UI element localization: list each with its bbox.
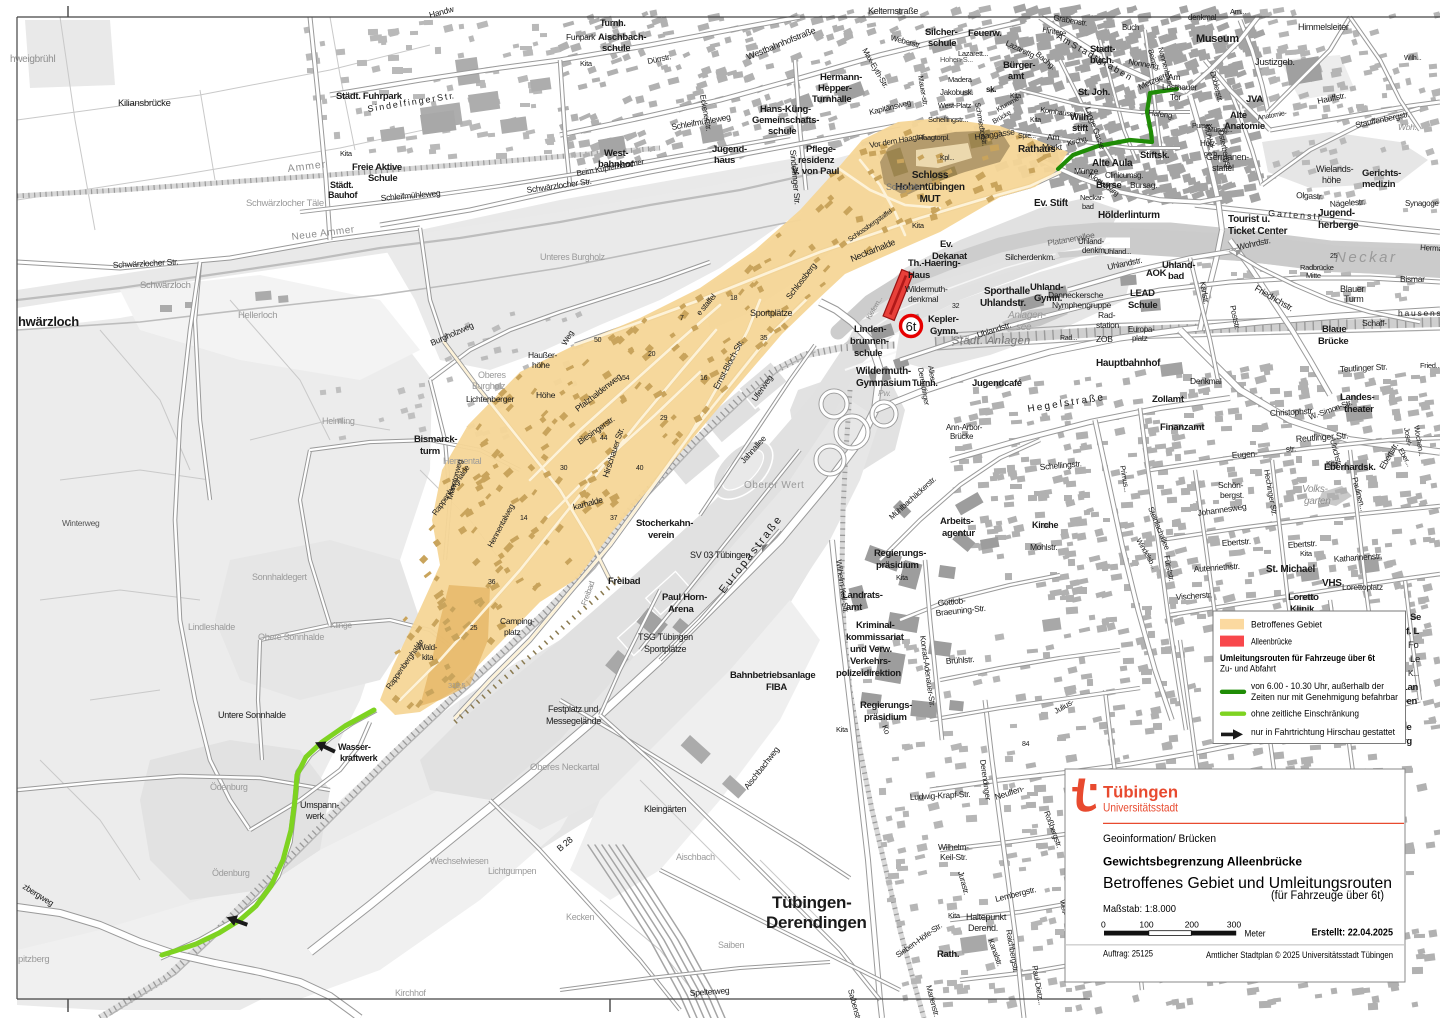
- svg-text:turm: turm: [420, 446, 440, 457]
- svg-text:Spie...: Spie...: [1018, 133, 1036, 140]
- svg-text:denkmal: denkmal: [1188, 13, 1217, 22]
- svg-text:Ticket Center: Ticket Center: [1228, 226, 1288, 237]
- svg-text:Rad...: Rad...: [1060, 335, 1077, 342]
- svg-text:Keil-Str.: Keil-Str.: [940, 852, 967, 862]
- svg-text:Messegelände: Messegelände: [546, 716, 601, 726]
- svg-text:Kita: Kita: [1030, 117, 1041, 124]
- svg-text:amt: amt: [1008, 71, 1025, 82]
- svg-text:brunnen-: brunnen-: [850, 336, 889, 347]
- svg-text:Helmling: Helmling: [322, 416, 355, 426]
- svg-text:ohne zeitliche Einschränkung: ohne zeitliche Einschränkung: [1251, 709, 1359, 720]
- svg-text:VHS: VHS: [1322, 578, 1342, 589]
- svg-text:höhe: höhe: [1322, 175, 1341, 185]
- svg-text:Freibad: Freibad: [608, 576, 641, 587]
- svg-text:Betroffenes Gebiet: Betroffenes Gebiet: [1251, 620, 1322, 631]
- svg-text:Clinicumsg.: Clinicumsg.: [1105, 171, 1143, 180]
- svg-text:Umspann-: Umspann-: [300, 800, 339, 810]
- svg-text:Uhland...: Uhland...: [1104, 247, 1132, 256]
- svg-text:Ödenburg: Ödenburg: [210, 782, 248, 792]
- svg-text:Loretto: Loretto: [1288, 592, 1319, 603]
- svg-text:40: 40: [636, 465, 644, 472]
- svg-text:Jakobusk.: Jakobusk.: [940, 88, 973, 97]
- svg-text:Stiftsk.: Stiftsk.: [1140, 150, 1169, 161]
- svg-text:Lustnauer: Lustnauer: [1162, 82, 1198, 92]
- svg-text:32: 32: [952, 303, 960, 310]
- svg-text:theater: theater: [1344, 404, 1374, 415]
- svg-text:Aischbach: Aischbach: [676, 852, 715, 862]
- svg-text:84: 84: [1022, 741, 1030, 748]
- svg-text:6t: 6t: [906, 319, 917, 334]
- svg-text:Nymphengruppe: Nymphengruppe: [1052, 300, 1112, 310]
- svg-text:sk.: sk.: [986, 85, 996, 94]
- svg-text:Schloss: Schloss: [912, 170, 949, 181]
- svg-text:Wilhelm-: Wilhelm-: [938, 842, 969, 852]
- svg-text:präsidium: präsidium: [876, 560, 919, 571]
- svg-text:denkmal: denkmal: [908, 294, 938, 304]
- svg-text:Olgastr.: Olgastr.: [1296, 190, 1323, 201]
- svg-text:37: 37: [610, 515, 618, 522]
- svg-text:Gewichtsbegrenzung Alleenbrück: Gewichtsbegrenzung Alleenbrücke: [1103, 854, 1302, 868]
- svg-text:Se: Se: [1410, 612, 1421, 623]
- svg-text:denkm.: denkm.: [1082, 246, 1107, 255]
- svg-text:Hellerloch: Hellerloch: [238, 310, 277, 321]
- svg-text:Zollamt: Zollamt: [1152, 394, 1185, 405]
- svg-text:Uhlandstr.: Uhlandstr.: [980, 298, 1026, 309]
- svg-text:Wasser-: Wasser-: [338, 742, 371, 752]
- svg-text:44: 44: [600, 435, 608, 442]
- svg-text:Sportplätze: Sportplätze: [644, 644, 687, 654]
- svg-text:Bismar: Bismar: [1400, 274, 1425, 284]
- svg-text:Mohlstr.: Mohlstr.: [1030, 542, 1057, 552]
- svg-text:Schänzle: Schänzle: [886, 182, 921, 192]
- svg-text:Neckar: Neckar: [1335, 249, 1398, 266]
- svg-text:Schule: Schule: [368, 173, 397, 184]
- svg-text:Sporthalle: Sporthalle: [984, 286, 1031, 297]
- svg-text:Burgholz: Burgholz: [472, 381, 506, 391]
- svg-text:Wald-: Wald-: [418, 643, 438, 652]
- svg-text:Th.-Haering-: Th.-Haering-: [908, 258, 960, 269]
- svg-text:pitzberg: pitzberg: [18, 954, 49, 965]
- svg-text:Bursag.: Bursag.: [1130, 180, 1157, 190]
- svg-text:schule: schule: [928, 38, 956, 49]
- svg-text:Oberes Neckartal: Oberes Neckartal: [530, 762, 599, 773]
- svg-text:Regierungs-: Regierungs-: [860, 700, 912, 711]
- svg-text:Haltepunkt: Haltepunkt: [966, 912, 1007, 922]
- svg-text:kommissariat: kommissariat: [846, 632, 905, 643]
- svg-text:Kelternstraße: Kelternstraße: [868, 6, 918, 16]
- svg-text:7: 7: [680, 315, 684, 322]
- svg-text:Kiliansbrücke: Kiliansbrücke: [118, 98, 171, 109]
- svg-text:29: 29: [660, 415, 668, 422]
- svg-text:Neckar-: Neckar-: [1080, 193, 1105, 202]
- svg-text:hweigbrühl: hweigbrühl: [10, 54, 55, 65]
- svg-text:Hölderlinturm: Hölderlinturm: [1098, 210, 1160, 221]
- svg-text:Alte Aula: Alte Aula: [1092, 158, 1133, 169]
- svg-text:garten: garten: [1304, 496, 1331, 507]
- svg-text:Justizgeb.: Justizgeb.: [1255, 57, 1295, 68]
- svg-text:Kirche: Kirche: [1032, 520, 1059, 530]
- svg-text:Brücke: Brücke: [1318, 336, 1348, 347]
- svg-text:20: 20: [648, 351, 656, 358]
- svg-text:Kita: Kita: [948, 911, 961, 920]
- svg-text:Kleingärten: Kleingärten: [644, 804, 687, 814]
- svg-text:Linden-: Linden-: [854, 324, 886, 335]
- svg-text:Hermann: Hermann: [1420, 243, 1440, 254]
- svg-text:stift: stift: [1072, 123, 1089, 134]
- svg-text:see: see: [1016, 322, 1032, 333]
- svg-text:Anlagen-: Anlagen-: [1007, 310, 1047, 321]
- svg-text:Germanen-: Germanen-: [1206, 152, 1249, 162]
- svg-text:Ödenburg: Ödenburg: [212, 868, 250, 878]
- svg-text:polizeidirektion: polizeidirektion: [836, 668, 901, 679]
- svg-text:kita: kita: [422, 653, 434, 662]
- svg-text:bahnhof: bahnhof: [598, 159, 634, 170]
- svg-text:West-Platz: West-Platz: [938, 101, 972, 110]
- svg-text:Schaff-: Schaff-: [1362, 318, 1387, 328]
- svg-text:LEAD: LEAD: [1130, 288, 1155, 299]
- svg-text:herberge: herberge: [1318, 220, 1359, 231]
- svg-text:JVA: JVA: [1246, 94, 1263, 105]
- svg-text:Universitätsstadt: Universitätsstadt: [1103, 801, 1179, 815]
- svg-text:16: 16: [700, 375, 708, 382]
- svg-text:300: 300: [1227, 920, 1241, 930]
- svg-text:büch.: büch.: [1090, 55, 1114, 66]
- svg-text:Rath.: Rath.: [937, 949, 959, 960]
- svg-text:Uhland-: Uhland-: [1162, 260, 1195, 271]
- svg-text:präsidium: präsidium: [864, 712, 907, 723]
- svg-text:residenz: residenz: [798, 155, 835, 166]
- svg-text:Umleitungsrouten für Fahrzeuge: Umleitungsrouten für Fahrzeuge über 6t: [1220, 653, 1376, 664]
- svg-text:Maßstab: 1:8.000: Maßstab: 1:8.000: [1103, 903, 1176, 915]
- svg-text:Denkmal: Denkmal: [1190, 376, 1222, 386]
- svg-text:Kita: Kita: [1300, 549, 1313, 558]
- svg-text:Obere Sonnhalde: Obere Sonnhalde: [258, 632, 324, 642]
- svg-text:nur in Fahrtrichtung Hirschau: nur in Fahrtrichtung Hirschau gestattet: [1251, 727, 1395, 738]
- svg-text:Erstellt: 22.04.2025: Erstellt: 22.04.2025: [1312, 926, 1394, 938]
- svg-text:und Verw.: und Verw.: [850, 644, 892, 655]
- svg-text:von 6.00 - 10.30 Uhr, außerhal: von 6.00 - 10.30 Uhr, außerhalb der: [1251, 681, 1384, 692]
- svg-text:str.: str.: [1285, 443, 1296, 454]
- svg-text:Fo: Fo: [1408, 640, 1419, 651]
- svg-text:Regierungs-: Regierungs-: [874, 548, 926, 559]
- svg-text:Münzg...: Münzg...: [1208, 127, 1233, 134]
- svg-text:Gerichts-: Gerichts-: [1362, 168, 1401, 179]
- svg-text:0: 0: [1101, 920, 1106, 930]
- svg-text:Wildermuth-: Wildermuth-: [856, 366, 911, 377]
- svg-text:Oberer Wert: Oberer Wert: [744, 480, 804, 491]
- svg-text:bergst.: bergst.: [1220, 490, 1244, 500]
- svg-text:Kriminal-: Kriminal-: [856, 620, 895, 631]
- svg-text:Unteres Burgholz: Unteres Burgholz: [540, 252, 606, 262]
- svg-text:Pflege-: Pflege-: [806, 144, 836, 155]
- svg-text:Jugend-: Jugend-: [1318, 208, 1355, 219]
- svg-text:Landes-: Landes-: [1340, 392, 1374, 403]
- svg-text:Amtlicher Stadtplan © 2025 Uni: Amtlicher Stadtplan © 2025 Universitätss…: [1206, 950, 1393, 960]
- svg-text:Wechselwiesen: Wechselwiesen: [430, 856, 489, 866]
- svg-text:Jugend-: Jugend-: [712, 144, 747, 155]
- svg-text:Blauer: Blauer: [1340, 284, 1365, 294]
- svg-text:Kepler-: Kepler-: [928, 314, 959, 325]
- svg-text:TSG Tübingen: TSG Tübingen: [638, 632, 693, 642]
- svg-text:Turnh.: Turnh.: [600, 18, 626, 28]
- svg-text:Hans-Küng-: Hans-Küng-: [760, 104, 811, 115]
- svg-text:Eugen-: Eugen-: [1231, 448, 1258, 460]
- svg-text:Blaue: Blaue: [1322, 324, 1346, 335]
- svg-text:bad: bad: [1082, 202, 1094, 211]
- svg-text:Saiben: Saiben: [718, 940, 745, 950]
- svg-text:Lorettoplatz: Lorettoplatz: [1342, 582, 1383, 592]
- svg-text:Zeiten nur mit Genehmigung bef: Zeiten nur mit Genehmigung befahrbar: [1251, 692, 1398, 703]
- svg-text:Am: Am: [1168, 72, 1180, 82]
- svg-text:hwärzloch: hwärzloch: [18, 314, 79, 329]
- svg-text:Derendingen: Derendingen: [766, 913, 867, 932]
- svg-text:staffel: staffel: [1212, 163, 1234, 173]
- svg-text:Schwärzlocher Täle: Schwärzlocher Täle: [246, 198, 324, 209]
- svg-text:kraftwerk: kraftwerk: [340, 753, 379, 763]
- svg-text:Aischbach-: Aischbach-: [598, 32, 646, 43]
- svg-text:Sportplätze: Sportplätze: [750, 308, 793, 318]
- svg-text:Freie Aktive: Freie Aktive: [352, 162, 402, 173]
- svg-text:Le: Le: [1410, 654, 1420, 665]
- svg-text:Lichtgumpen: Lichtgumpen: [488, 866, 537, 876]
- svg-text:Kpl...: Kpl...: [940, 155, 955, 162]
- svg-text:Madera: Madera: [948, 75, 973, 84]
- svg-text:Hepper-: Hepper-: [818, 83, 852, 94]
- svg-text:FIBA: FIBA: [766, 682, 787, 693]
- svg-text:Silcherdenkm.: Silcherdenkm.: [1005, 252, 1055, 262]
- svg-text:18: 18: [730, 295, 738, 302]
- svg-text:werk: werk: [305, 811, 325, 821]
- svg-text:36: 36: [488, 579, 496, 586]
- svg-text:Kita: Kita: [1326, 459, 1339, 468]
- svg-text:50: 50: [594, 337, 602, 344]
- svg-text:30: 30: [560, 465, 568, 472]
- svg-text:Wilh...: Wilh...: [1404, 55, 1422, 62]
- svg-text:Fried...: Fried...: [1420, 361, 1440, 370]
- svg-text:Europa-: Europa-: [1128, 325, 1155, 334]
- svg-text:Synagoge: Synagoge: [1405, 199, 1439, 208]
- svg-text:Städt. Anlagen: Städt. Anlagen: [952, 335, 1031, 347]
- svg-text:Ann-Arbor-: Ann-Arbor-: [946, 423, 983, 432]
- svg-text:Turnh.: Turnh.: [912, 378, 938, 388]
- svg-text:Kita: Kita: [340, 149, 353, 158]
- svg-text:Städt.: Städt.: [330, 180, 353, 190]
- svg-text:Stocherkahn-: Stocherkahn-: [636, 518, 693, 529]
- svg-text:Rathaus: Rathaus: [1018, 144, 1056, 155]
- svg-text:Am...: Am...: [1230, 7, 1246, 16]
- svg-text:Turm: Turm: [1344, 294, 1363, 304]
- svg-text:medizin: medizin: [1362, 179, 1396, 190]
- svg-text:Wildermuth-: Wildermuth-: [905, 284, 948, 294]
- svg-text:Bahnbetriebsanlage: Bahnbetriebsanlage: [730, 670, 815, 681]
- svg-text:200: 200: [1185, 920, 1199, 930]
- svg-text:schule: schule: [854, 348, 882, 359]
- svg-text:Jugendcafé: Jugendcafé: [972, 378, 1022, 389]
- svg-text:West-: West-: [604, 148, 628, 159]
- svg-text:Buch: Buch: [1122, 23, 1139, 32]
- svg-text:54: 54: [622, 375, 630, 382]
- svg-text:Oberes: Oberes: [478, 370, 507, 380]
- svg-text:Alte: Alte: [1230, 110, 1247, 121]
- svg-text:station: station: [1096, 320, 1120, 330]
- svg-text:Paul Horn-: Paul Horn-: [662, 592, 707, 603]
- svg-text:Ev.: Ev.: [940, 239, 953, 250]
- svg-text:Mitte: Mitte: [1306, 271, 1321, 280]
- svg-text:Pw.: Pw.: [878, 388, 891, 398]
- svg-text:Arbeits-: Arbeits-: [940, 516, 974, 527]
- svg-text:Kecken: Kecken: [566, 912, 595, 922]
- svg-text:AOK: AOK: [1146, 268, 1167, 279]
- svg-text:Verkehrs-: Verkehrs-: [850, 656, 891, 667]
- svg-text:Funpark: Funpark: [566, 32, 596, 42]
- svg-text:platz: platz: [504, 627, 521, 637]
- svg-text:Kita: Kita: [836, 725, 849, 734]
- svg-text:Gemeinschafts-: Gemeinschafts-: [752, 115, 819, 126]
- svg-text:Tourist u.: Tourist u.: [1228, 214, 1270, 225]
- svg-text:14: 14: [520, 515, 528, 522]
- svg-text:Derend.: Derend.: [968, 923, 998, 933]
- svg-text:f. L: f. L: [1406, 626, 1420, 637]
- svg-text:Brühlstr.: Brühlstr.: [945, 654, 974, 666]
- svg-text:318,5: 318,5: [448, 681, 465, 690]
- svg-text:Alleenbrücke: Alleenbrücke: [1251, 636, 1292, 647]
- svg-text:Haus: Haus: [908, 270, 930, 281]
- svg-text:Tübingen: Tübingen: [1103, 782, 1178, 801]
- svg-text:h a u s e n s t: h a u s e n s t: [1398, 308, 1440, 318]
- svg-text:25: 25: [1330, 253, 1338, 260]
- svg-text:Haußer-: Haußer-: [528, 350, 558, 360]
- svg-text:Bauhof: Bauhof: [328, 190, 358, 200]
- svg-text:Arena: Arena: [668, 604, 694, 615]
- svg-text:Wbh.: Wbh.: [1398, 122, 1417, 132]
- svg-text:Brücke: Brücke: [950, 432, 974, 441]
- svg-text:Untere Sonnhalde: Untere Sonnhalde: [218, 710, 286, 720]
- svg-text:Danneckersche: Danneckersche: [1048, 290, 1104, 300]
- svg-text:platz: platz: [1132, 334, 1148, 343]
- svg-text:Am: Am: [1047, 132, 1059, 142]
- svg-text:Lichtenberger: Lichtenberger: [466, 394, 515, 404]
- svg-text:Feuerw.: Feuerw.: [968, 28, 1001, 39]
- svg-text:Winterweg: Winterweg: [62, 518, 100, 528]
- svg-text:Tübingen-: Tübingen-: [772, 893, 851, 912]
- svg-text:Schule: Schule: [1128, 300, 1157, 311]
- svg-text:Höhe: Höhe: [536, 390, 556, 400]
- svg-text:MUT: MUT: [920, 194, 941, 205]
- svg-text:Schwärzloch: Schwärzloch: [140, 280, 191, 291]
- svg-text:(für Fahrzeuge über 6t): (für Fahrzeuge über 6t): [1271, 890, 1384, 902]
- svg-text:Himmelsleiter: Himmelsleiter: [1298, 22, 1349, 32]
- svg-text:Bismarck-: Bismarck-: [414, 434, 457, 445]
- svg-text:Rad-: Rad-: [1098, 310, 1116, 320]
- svg-text:schule: schule: [602, 43, 630, 54]
- svg-text:Kirchhof: Kirchhof: [395, 988, 426, 998]
- svg-text:Lindleshalde: Lindleshalde: [188, 622, 235, 632]
- svg-text:Bürger-: Bürger-: [1003, 60, 1035, 71]
- svg-text:Festplatz und: Festplatz und: [548, 704, 598, 714]
- svg-text:verein: verein: [648, 530, 675, 541]
- svg-text:Meter: Meter: [1245, 929, 1266, 940]
- svg-text:Hauptbahnhof: Hauptbahnhof: [1096, 358, 1161, 369]
- svg-text:bad: bad: [1168, 271, 1184, 282]
- svg-text:Auftrag: 25125: Auftrag: 25125: [1103, 949, 1153, 959]
- svg-text:Schön-: Schön-: [1218, 480, 1244, 490]
- svg-text:Kita: Kita: [896, 573, 909, 582]
- svg-text:Lazarett...: Lazarett...: [958, 49, 988, 58]
- svg-text:Volks-: Volks-: [1302, 484, 1329, 495]
- svg-text:Museum: Museum: [1196, 33, 1239, 45]
- svg-text:schule: schule: [768, 126, 796, 137]
- svg-text:Zu- und Abfahrt: Zu- und Abfahrt: [1220, 663, 1276, 674]
- svg-text:St. Michael: St. Michael: [1266, 564, 1315, 575]
- svg-text:100: 100: [1139, 920, 1153, 930]
- svg-text:Sonnhaldegert: Sonnhaldegert: [252, 572, 307, 582]
- svg-text:Ev. Stift: Ev. Stift: [1034, 198, 1069, 209]
- svg-text:St. Joh.: St. Joh.: [1078, 87, 1110, 98]
- svg-text:Silcher-: Silcher-: [925, 27, 958, 38]
- svg-text:Camping-: Camping-: [500, 616, 535, 626]
- svg-text:ZOB: ZOB: [1096, 334, 1113, 344]
- svg-text:Wielands-: Wielands-: [1316, 164, 1354, 174]
- svg-text:Kita: Kita: [580, 59, 593, 68]
- svg-text:K...: K...: [1408, 669, 1419, 678]
- svg-text:höhe: höhe: [532, 360, 550, 370]
- svg-text:Geoinformation/ Brücken: Geoinformation/ Brücken: [1103, 833, 1216, 845]
- svg-text:Tor: Tor: [1170, 92, 1181, 102]
- svg-text:Ebertstr.: Ebertstr.: [1221, 536, 1251, 548]
- svg-text:Turnhalle: Turnhalle: [812, 94, 851, 105]
- svg-text:Uhland-: Uhland-: [1078, 237, 1105, 246]
- svg-text:25: 25: [470, 625, 478, 632]
- svg-text:haus: haus: [714, 155, 735, 166]
- svg-text:Kita: Kita: [912, 221, 925, 230]
- svg-text:Hermann-: Hermann-: [820, 72, 862, 83]
- svg-text:35: 35: [760, 335, 768, 342]
- svg-text:Klinge: Klinge: [330, 620, 352, 630]
- svg-text:V. von Paul: V. von Paul: [792, 166, 839, 177]
- svg-text:Schellingstr...: Schellingstr...: [928, 115, 968, 124]
- svg-text:agentur: agentur: [942, 528, 975, 539]
- svg-text:Finanzamt: Finanzamt: [1160, 422, 1205, 433]
- svg-text:Stadt-: Stadt-: [1090, 44, 1115, 55]
